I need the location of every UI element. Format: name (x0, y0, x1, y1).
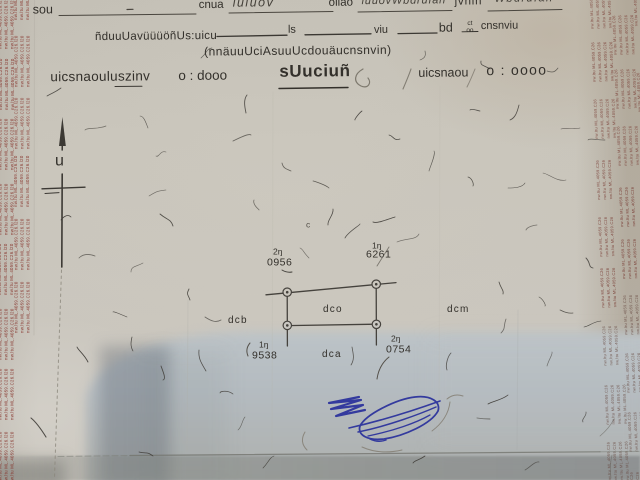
svg-text:c: c (306, 220, 311, 230)
svg-text:nw.ltu ML.4059.C26.l20: nw.ltu ML.4059.C26.l20 (0, 183, 2, 235)
svg-text:jvnin: jvnin (454, 0, 483, 8)
svg-text:sou: sou (33, 2, 53, 16)
svg-text:0754: 0754 (386, 344, 411, 356)
svg-text:nw.ltu ML.4059.C26: nw.ltu ML.4059.C26 (609, 216, 616, 256)
svg-text:dco: dco (323, 304, 343, 315)
svg-text:nw.ltu ML.4059.C26.l20: nw.ltu ML.4059.C26.l20 (14, 218, 19, 270)
svg-text:nw.ltu ML.4059.C26.l20: nw.ltu ML.4059.C26.l20 (26, 218, 31, 270)
svg-text:nw.ltu ML.4059.C26.l20: nw.ltu ML.4059.C26.l20 (20, 35, 25, 87)
svg-text:dcm: dcm (447, 304, 470, 315)
svg-text:2ŋ: 2ŋ (391, 334, 401, 344)
svg-text:nw.ltu ML.4059.C26.l20: nw.ltu ML.4059.C26.l20 (10, 368, 15, 420)
svg-text:nw.ltu ML.4059.C26.l20: nw.ltu ML.4059.C26.l20 (14, 35, 19, 87)
svg-text:0956: 0956 (267, 257, 292, 269)
svg-text:ñduuUavüüüöñUs:uicu: ñduuUavüüüöñUs:uicu (95, 30, 217, 43)
svg-text:dca: dca (322, 349, 342, 360)
svg-text:nw.ltu ML.4059.C26: nw.ltu ML.4059.C26 (588, 0, 595, 29)
svg-text:o : oooo: o : oooo (486, 62, 547, 79)
svg-text:nw.ltu ML.4059.C26: nw.ltu ML.4059.C26 (634, 295, 640, 335)
svg-text:nw.ltu ML.4059.C26: nw.ltu ML.4059.C26 (600, 0, 607, 29)
svg-text:nw.ltu ML.4059.C26.l20: nw.ltu ML.4059.C26.l20 (0, 243, 2, 295)
svg-text:bd: bd (439, 21, 453, 35)
svg-text:nw.ltu ML.4059.C26.l20: nw.ltu ML.4059.C26.l20 (4, 368, 9, 420)
svg-text:nw.ltu ML.4059.C26.l20: nw.ltu ML.4059.C26.l20 (4, 431, 9, 480)
svg-text:nw.ltu ML.4059.C26.l20: nw.ltu ML.4059.C26.l20 (0, 308, 3, 360)
svg-text:nw.ltu ML.4059.C26: nw.ltu ML.4059.C26 (611, 267, 618, 307)
svg-text:nw.ltu ML.4059.C26: nw.ltu ML.4059.C26 (632, 239, 639, 279)
svg-text:cnsnviu: cnsnviu (481, 20, 518, 32)
svg-text:nw.ltu ML.4059.C26.l20: nw.ltu ML.4059.C26.l20 (3, 0, 8, 49)
svg-text:1ŋ: 1ŋ (259, 340, 269, 350)
svg-text:9538: 9538 (252, 350, 277, 362)
svg-text:nw.ltu ML.4059.C26.l20: nw.ltu ML.4059.C26.l20 (3, 183, 8, 235)
svg-text:dcb: dcb (228, 315, 248, 326)
svg-text:nw.ltu ML.4059.C26: nw.ltu ML.4059.C26 (635, 472, 640, 480)
svg-text:(nnäuuUciAsuuUcdouäucnsnvin): (nnäuuUciAsuuUcdouäucnsnvin) (204, 43, 392, 59)
svg-text:nw.ltu ML.4059.C26.l20: nw.ltu ML.4059.C26.l20 (4, 58, 9, 110)
svg-text:luiuov: luiuov (233, 0, 275, 10)
svg-text:nw.ltu ML.4059.C26.l20: nw.ltu ML.4059.C26.l20 (13, 0, 18, 20)
svg-text:nw.ltu ML.4059.C26.l20: nw.ltu ML.4059.C26.l20 (0, 431, 3, 480)
svg-text:oo: oo (466, 27, 474, 34)
svg-text:sUuciuñ: sUuciuñ (279, 61, 350, 81)
svg-text:6261: 6261 (366, 249, 391, 261)
svg-text:nw.ltu ML.4059.C26: nw.ltu ML.4059.C26 (594, 0, 601, 29)
svg-text:nw.ltu ML.4059.C26.l20: nw.ltu ML.4059.C26.l20 (19, 0, 24, 20)
svg-text:nw.ltu ML.4059.C26.l20: nw.ltu ML.4059.C26.l20 (0, 368, 3, 420)
svg-text:WbdruIan: WbdruIan (495, 0, 554, 5)
svg-text:ct: ct (467, 20, 472, 27)
svg-text:nw.ltu ML.4059.C26: nw.ltu ML.4059.C26 (635, 72, 640, 112)
svg-text:nw.ltu ML.4059.C26.l20: nw.ltu ML.4059.C26.l20 (20, 218, 25, 270)
svg-text:iuuovWbdruIan: iuuovWbdruIan (362, 0, 447, 7)
svg-text:oiiao: oiiao (329, 0, 353, 9)
svg-text:ls: ls (288, 24, 297, 36)
svg-text:nw.ltu ML.4059.C26.l20: nw.ltu ML.4059.C26.l20 (19, 97, 24, 149)
svg-text:nw.ltu ML.4059.C26.l20: nw.ltu ML.4059.C26.l20 (19, 155, 24, 207)
svg-text:nw.ltu ML.4059.C26.l20: nw.ltu ML.4059.C26.l20 (13, 155, 18, 207)
svg-text:nw.ltu ML.4059.C26: nw.ltu ML.4059.C26 (636, 353, 640, 393)
svg-text:nw.ltu ML.4059.C26.l20: nw.ltu ML.4059.C26.l20 (0, 58, 3, 110)
svg-text:nw.ltu ML.4059.C26.l20: nw.ltu ML.4059.C26.l20 (25, 97, 30, 149)
svg-text:nw.ltu ML.4059.C26: nw.ltu ML.4059.C26 (613, 325, 620, 365)
svg-text:nw.ltu ML.4059.C26.l20: nw.ltu ML.4059.C26.l20 (4, 308, 9, 360)
svg-text:uicsnaouluszinv: uicsnaouluszinv (50, 68, 150, 84)
svg-text:nw.ltu ML.4059.C26.l20: nw.ltu ML.4059.C26.l20 (25, 281, 30, 333)
svg-text:uicsnaou: uicsnaou (418, 65, 468, 79)
svg-text:nw.ltu ML.4059.C26: nw.ltu ML.4059.C26 (630, 187, 637, 227)
svg-text:nw.ltu ML.4059.C26: nw.ltu ML.4059.C26 (607, 159, 614, 199)
svg-text:nw.ltu ML.4059.C26.l20: nw.ltu ML.4059.C26.l20 (25, 0, 30, 20)
svg-text:viu: viu (374, 24, 388, 36)
svg-text:nw.ltu ML.4059.C26: nw.ltu ML.4059.C26 (632, 0, 639, 26)
svg-text:nw.ltu ML.4059.C26.l20: nw.ltu ML.4059.C26.l20 (13, 281, 18, 333)
svg-text:nw.ltu ML.4059.C26.l20: nw.ltu ML.4059.C26.l20 (0, 118, 3, 170)
svg-text:nw.ltu ML.4059.C26.l20: nw.ltu ML.4059.C26.l20 (4, 118, 9, 170)
svg-text:nw.ltu ML.4059.C26.l20: nw.ltu ML.4059.C26.l20 (13, 97, 18, 149)
svg-text:nw.ltu ML.4059.C26.l20: nw.ltu ML.4059.C26.l20 (10, 431, 15, 480)
svg-text:o : dooo: o : dooo (178, 68, 227, 83)
svg-text:nw.ltu ML.4059.C26.l20: nw.ltu ML.4059.C26.l20 (25, 155, 30, 207)
svg-text:nw.ltu ML.4059.C26.l20: nw.ltu ML.4059.C26.l20 (19, 281, 24, 333)
svg-text:nw.ltu ML.4059.C26.l20: nw.ltu ML.4059.C26.l20 (3, 243, 8, 295)
svg-text:u: u (55, 153, 64, 170)
svg-text:nw.ltu ML.4059.C26.l20: nw.ltu ML.4059.C26.l20 (26, 35, 31, 87)
svg-text:nw.ltu ML.4059.C26.l20: nw.ltu ML.4059.C26.l20 (0, 0, 2, 49)
svg-text:cnua: cnua (199, 0, 225, 11)
svg-text:2ŋ: 2ŋ (273, 247, 283, 257)
